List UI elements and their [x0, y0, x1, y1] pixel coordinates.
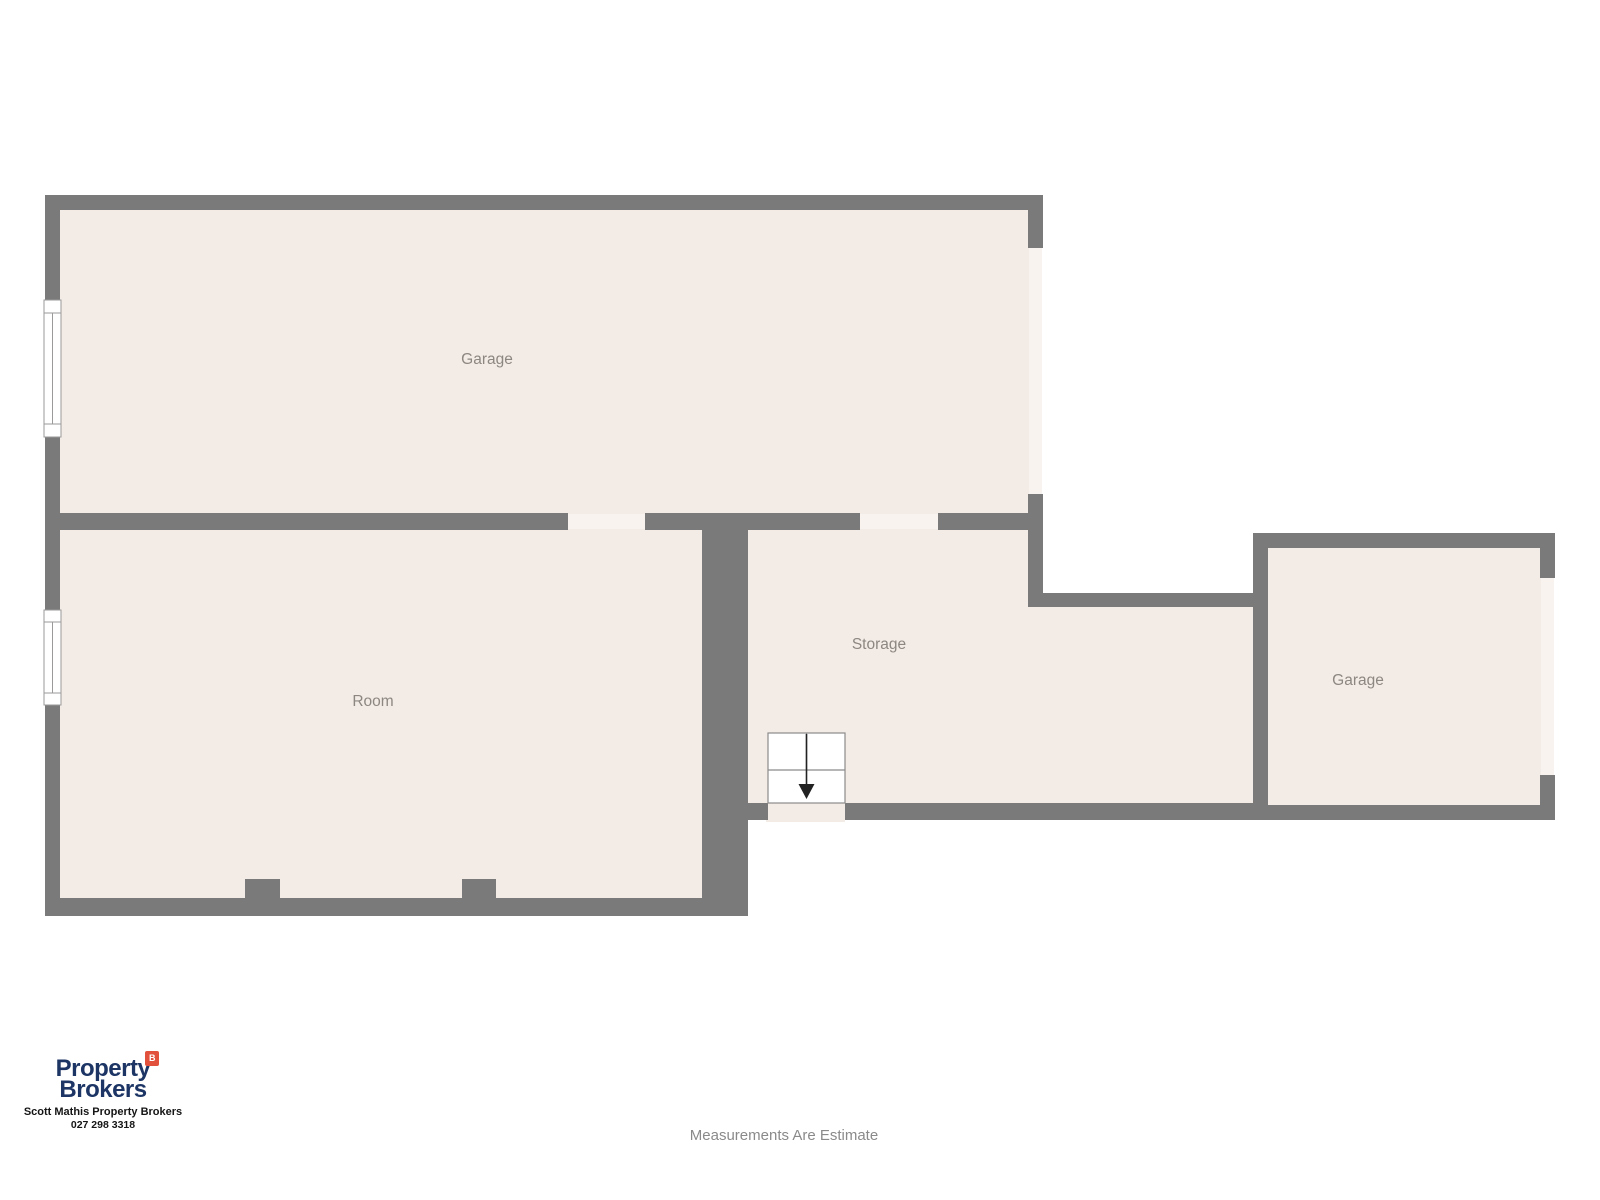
agent-name: Scott Mathis Property Brokers — [15, 1106, 191, 1118]
brand-logo: Property B Brokers Scott Mathis Property… — [33, 1058, 173, 1131]
wall-segment — [702, 513, 748, 916]
room-label-storage: Storage — [852, 636, 906, 653]
wall-segment — [645, 513, 860, 530]
floor-plan-page: Garage Room Storage Garage Property B Br… — [0, 0, 1600, 1200]
floor-room — [52, 520, 707, 905]
wall-segment — [1253, 533, 1268, 820]
wall-segment — [1253, 533, 1555, 548]
wall-segment — [1540, 775, 1555, 820]
window-icon — [44, 610, 61, 705]
wall-segment — [748, 803, 768, 820]
wall-segment — [1540, 533, 1555, 578]
floor-plan: Garage Room Storage Garage — [0, 0, 1600, 1200]
garage-door-opening — [1541, 578, 1554, 775]
wall-segment — [1028, 593, 1268, 607]
wall-post — [245, 879, 280, 899]
brand-wordmark-brokers: Brokers — [33, 1079, 173, 1100]
wall-post — [462, 879, 496, 899]
room-label-garage-right: Garage — [1332, 672, 1384, 689]
wall-segment — [845, 803, 1268, 820]
wall-segment — [45, 513, 568, 530]
floor-garage-top — [52, 202, 1037, 520]
room-label-room: Room — [352, 693, 393, 710]
window-icon — [44, 300, 61, 437]
wall-opening — [860, 514, 938, 529]
stairs — [768, 733, 845, 803]
wall-segment — [45, 898, 748, 916]
garage-door-opening — [1029, 248, 1042, 494]
wall-segment — [1253, 805, 1555, 820]
brand-pin-icon: B — [145, 1051, 159, 1066]
wall-segment — [1028, 210, 1043, 248]
wall-segment — [938, 513, 1043, 530]
disclaimer-text: Measurements Are Estimate — [0, 1127, 1568, 1144]
floor-garage-right — [1260, 540, 1548, 812]
wall-opening — [568, 514, 645, 529]
wall-segment — [45, 195, 1043, 210]
room-label-garage-top: Garage — [461, 351, 513, 368]
